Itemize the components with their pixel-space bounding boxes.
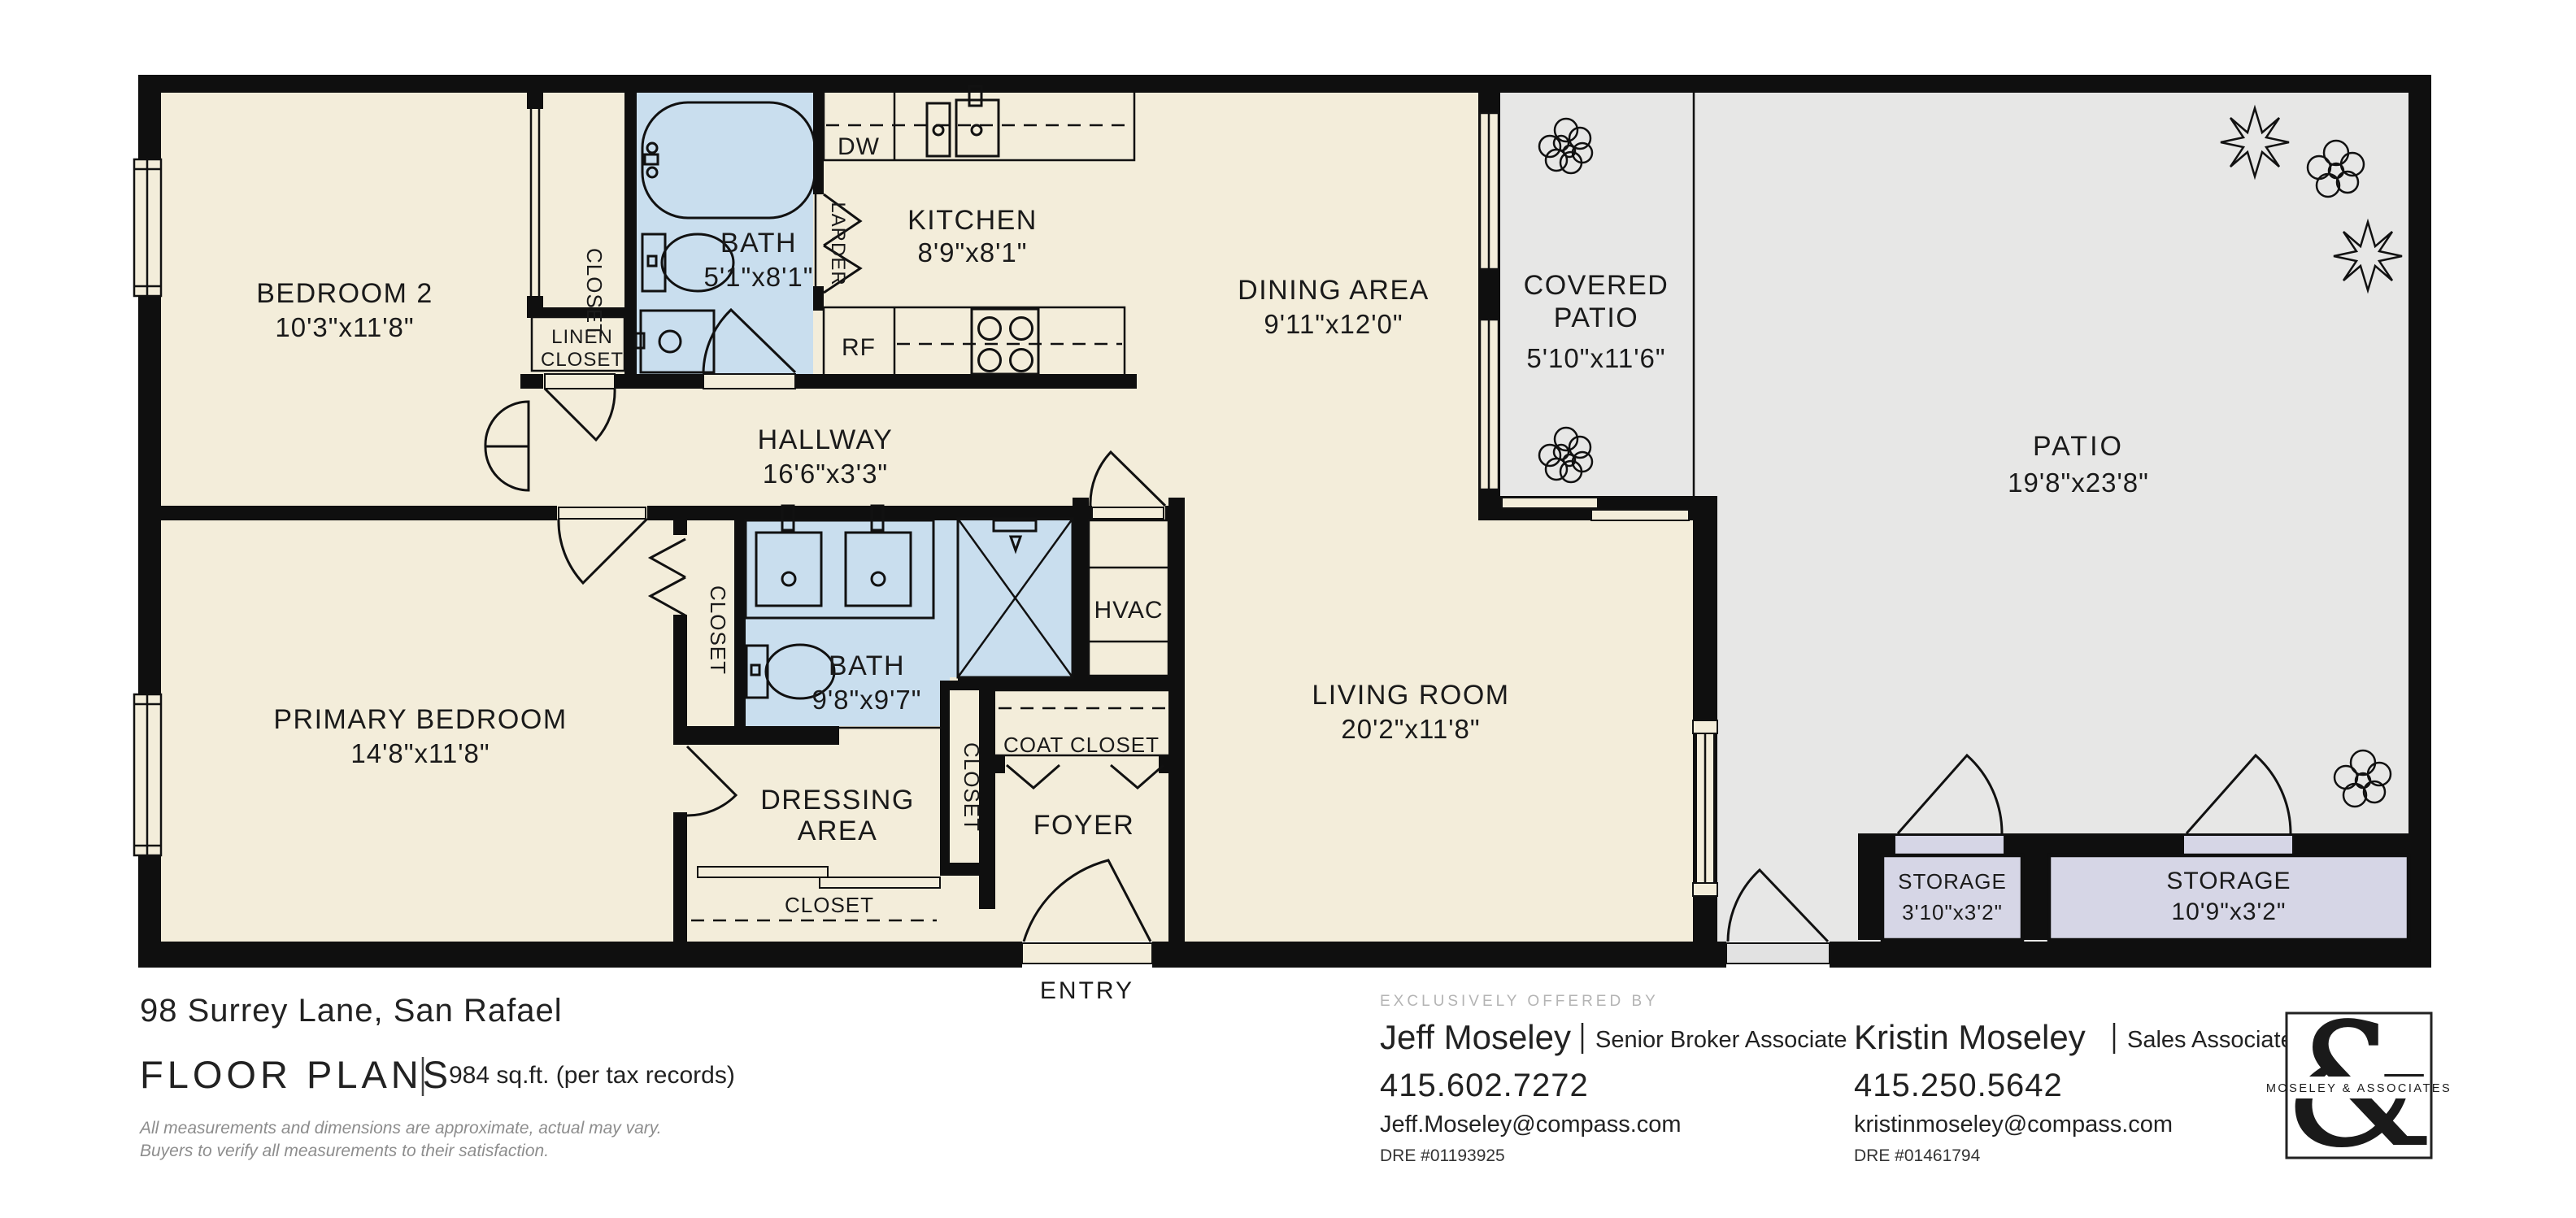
page-title: FLOOR PLANS	[140, 1053, 452, 1096]
area-note: 984 sq.ft. (per tax records)	[449, 1062, 735, 1089]
sliding-door-living-patio-icon	[1693, 720, 1717, 896]
dining-label: DINING AREA	[1238, 275, 1429, 306]
bedroom2-label: BEDROOM 2	[256, 278, 433, 309]
window-dining-1-icon	[1480, 113, 1499, 269]
agent-1-name: Jeff Moseley	[1380, 1018, 1571, 1056]
bath-lower-label: BATH	[829, 650, 905, 681]
window-primary-icon	[134, 694, 161, 855]
storage-rooms	[1882, 855, 2408, 940]
hvac-label: HVAC	[1094, 597, 1163, 624]
brokerage-logo: & MOSELEY & ASSOCIATES	[2266, 986, 2452, 1185]
hallway-label: HALLWAY	[758, 424, 894, 455]
agent-2-name: Kristin Moseley	[1854, 1018, 2086, 1056]
agent-2-role: Sales Associate	[2127, 1027, 2294, 1053]
coat-closet-label: COAT CLOSET	[1003, 733, 1160, 757]
window-dining-2-icon	[1480, 320, 1499, 489]
dishwasher-label: DW	[838, 133, 880, 160]
covered-patio-label-2: PATIO	[1554, 302, 1638, 333]
bath-upper-label: BATH	[720, 228, 797, 259]
larder-label: LARDER	[827, 202, 849, 285]
bedroom2-closet-label: CLOSET	[582, 248, 607, 337]
disclaimer-line-2: Buyers to verify all measurements to the…	[140, 1142, 549, 1160]
storage-small-box	[1882, 855, 2022, 940]
foyer-label: FOYER	[1033, 810, 1135, 841]
logo-name: MOSELEY & ASSOCIATES	[2266, 1082, 2452, 1095]
patio-label: PATIO	[2033, 431, 2124, 462]
bath-upper-dims: 5'1"x8'1"	[704, 262, 814, 292]
bath-lower-dims: 9'8"x9'7"	[812, 685, 922, 715]
primary-dims: 14'8"x11'8"	[350, 738, 490, 768]
kitchen-dims: 8'9"x8'1"	[918, 237, 1028, 268]
refrigerator-label: RF	[842, 334, 876, 361]
agent-1-phone: 415.602.7272	[1380, 1068, 1589, 1103]
floor-plan-canvas: BEDROOM 2 10'3"x11'8" CLOSET LINEN CLOSE…	[0, 0, 2576, 1218]
primary-label: PRIMARY BEDROOM	[273, 704, 567, 735]
property-address: 98 Surrey Lane, San Rafael	[140, 993, 563, 1029]
living-label: LIVING ROOM	[1312, 680, 1509, 711]
storage-small-label: STORAGE	[1898, 869, 2007, 894]
covered-patio-label-1: COVERED	[1524, 270, 1669, 301]
storage-large-label: STORAGE	[2166, 868, 2291, 894]
window-bedroom2-icon	[134, 159, 161, 296]
covered-patio-dims: 5'10"x11'6"	[1526, 343, 1665, 373]
linen-closet-label-2: CLOSET	[541, 349, 624, 371]
dressing-label-2: AREA	[798, 816, 878, 846]
bedroom2-dims: 10'3"x11'8"	[275, 312, 414, 342]
storage-large-dims: 10'9"x3'2"	[2171, 898, 2286, 925]
patio-dims: 19'8"x23'8"	[2008, 468, 2149, 498]
agent-card-1: Jeff Moseley Senior Broker Associate 415…	[1380, 1018, 1847, 1165]
bath-lower-floor	[746, 519, 1073, 677]
footer: 98 Surrey Lane, San Rafael FLOOR PLANS 9…	[138, 986, 2452, 1185]
disclaimer-line-1: All measurements and dimensions are appr…	[138, 1119, 662, 1138]
agent-1-email: Jeff.Moseley@compass.com	[1380, 1111, 1682, 1138]
dining-dims: 9'11"x12'0"	[1264, 309, 1403, 339]
primary-closet-label: CLOSET	[785, 893, 874, 917]
entry-label: ENTRY	[1040, 977, 1134, 1004]
agent-card-2: Kristin Moseley Sales Associate 415.250.…	[1854, 1018, 2294, 1165]
agent-1-role: Senior Broker Associate	[1595, 1027, 1847, 1053]
offered-by-label: EXCLUSIVELY OFFERED BY	[1380, 993, 1659, 1010]
agent-2-email: kristinmoseley@compass.com	[1854, 1111, 2173, 1138]
foyer-closet-label: CLOSET	[959, 742, 984, 832]
primary-closet-side-label: CLOSET	[706, 585, 730, 675]
patio-floor	[1693, 93, 2408, 942]
agent-2-dre: DRE #01461794	[1854, 1146, 1981, 1165]
storage-small-dims: 3'10"x3'2"	[1902, 900, 2003, 924]
dressing-label-1: DRESSING	[760, 785, 915, 816]
kitchen-label: KITCHEN	[907, 205, 1038, 236]
linen-closet-label-1: LINEN	[551, 326, 613, 348]
agent-1-dre: DRE #01193925	[1380, 1146, 1505, 1165]
agent-2-phone: 415.250.5642	[1854, 1068, 2063, 1103]
living-dims: 20'2"x11'8"	[1341, 714, 1480, 744]
hallway-dims: 16'6"x3'3"	[763, 459, 888, 489]
